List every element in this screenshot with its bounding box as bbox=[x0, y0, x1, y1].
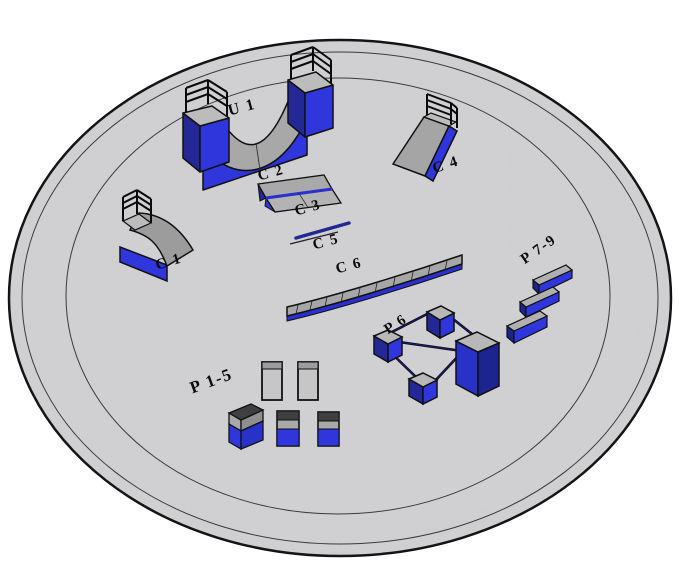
skatepark-diagram: U 1 C 4 C 1 C 2 C 3 bbox=[0, 0, 680, 579]
scene-canvas: U 1 C 4 C 1 C 2 C 3 bbox=[0, 0, 680, 579]
p1-pad bbox=[262, 362, 282, 400]
u1-right-platform bbox=[288, 72, 333, 137]
u1-left-platform bbox=[183, 106, 229, 172]
p6-box-right-large bbox=[456, 332, 499, 396]
p3-box-tilted bbox=[229, 404, 263, 449]
p4-box bbox=[277, 411, 299, 446]
p5-box bbox=[318, 412, 339, 446]
p6-box-top bbox=[427, 306, 454, 338]
p2-pad bbox=[298, 362, 318, 400]
